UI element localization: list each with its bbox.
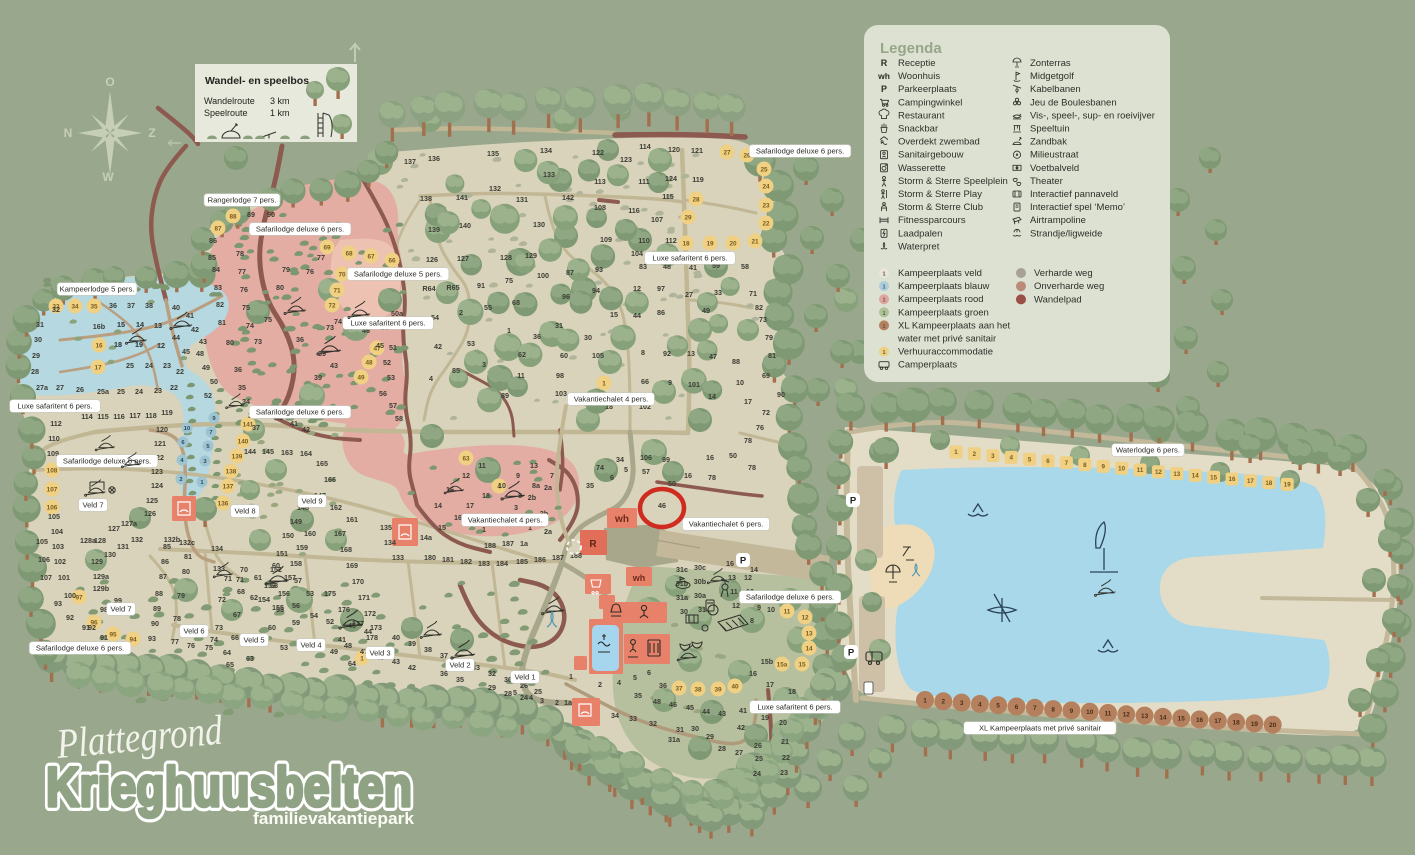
svg-text:Kampeerplaats blauw: Kampeerplaats blauw	[898, 281, 989, 292]
svg-text:135: 135	[380, 523, 392, 532]
svg-text:18: 18	[114, 340, 122, 349]
svg-text:7: 7	[209, 430, 212, 436]
svg-text:2: 2	[973, 451, 977, 458]
svg-text:10: 10	[1086, 709, 1094, 716]
svg-text:121: 121	[154, 439, 166, 448]
svg-text:15: 15	[117, 320, 125, 329]
svg-text:41: 41	[739, 706, 747, 715]
svg-text:14: 14	[1159, 714, 1167, 721]
svg-text:145: 145	[262, 447, 274, 456]
svg-text:5: 5	[633, 673, 637, 682]
svg-text:125: 125	[146, 496, 158, 505]
svg-text:163: 163	[281, 448, 293, 457]
svg-text:61: 61	[254, 573, 262, 582]
svg-text:80: 80	[182, 567, 190, 576]
svg-text:Veld 5: Veld 5	[243, 636, 264, 645]
svg-text:30a: 30a	[694, 591, 707, 600]
svg-text:79: 79	[282, 265, 290, 274]
svg-text:108: 108	[594, 203, 606, 212]
svg-text:127a: 127a	[121, 519, 138, 528]
svg-text:42: 42	[302, 425, 310, 434]
svg-text:R65: R65	[446, 283, 459, 292]
svg-text:79: 79	[177, 591, 185, 600]
svg-text:75: 75	[264, 315, 272, 324]
svg-text:29: 29	[684, 214, 692, 221]
svg-text:142: 142	[562, 193, 574, 202]
svg-text:12: 12	[744, 573, 752, 582]
svg-text:32: 32	[488, 669, 496, 678]
svg-text:57: 57	[642, 467, 650, 476]
svg-text:31: 31	[676, 725, 684, 734]
svg-text:37: 37	[127, 301, 135, 310]
svg-text:131: 131	[117, 542, 129, 551]
svg-text:1: 1	[882, 298, 885, 304]
svg-text:8: 8	[1051, 707, 1055, 714]
svg-text:Safarilodge deluxe 6 pers.: Safarilodge deluxe 6 pers.	[746, 593, 834, 602]
svg-text:27: 27	[56, 383, 64, 392]
svg-text:72: 72	[218, 595, 226, 604]
svg-text:116: 116	[628, 206, 640, 215]
svg-text:123: 123	[151, 467, 163, 476]
svg-text:126: 126	[144, 509, 156, 518]
svg-text:11: 11	[517, 371, 525, 380]
svg-text:75: 75	[242, 303, 250, 312]
svg-text:138: 138	[420, 194, 432, 203]
svg-text:38: 38	[694, 686, 702, 693]
svg-text:83: 83	[214, 283, 222, 292]
svg-text:119: 119	[161, 408, 173, 417]
svg-text:15: 15	[610, 310, 618, 319]
svg-text:15: 15	[1178, 716, 1186, 723]
svg-text:29: 29	[32, 351, 40, 360]
svg-text:31: 31	[36, 320, 44, 329]
svg-text:86: 86	[161, 557, 169, 566]
svg-text:181: 181	[442, 555, 454, 564]
svg-text:Safarilodge deluxe 6 pers.: Safarilodge deluxe 6 pers.	[256, 225, 344, 234]
svg-text:29: 29	[706, 732, 714, 741]
svg-text:10: 10	[1118, 465, 1125, 472]
svg-text:1: 1	[882, 285, 885, 291]
svg-text:Legenda: Legenda	[880, 40, 942, 57]
svg-text:37: 37	[440, 651, 448, 660]
svg-text:32: 32	[52, 305, 60, 314]
svg-text:98: 98	[556, 371, 564, 380]
svg-text:wh: wh	[632, 573, 646, 583]
svg-text:129: 129	[91, 557, 103, 566]
svg-text:87: 87	[159, 572, 167, 581]
svg-text:138: 138	[226, 468, 237, 475]
svg-text:19: 19	[761, 713, 769, 722]
svg-text:59: 59	[292, 618, 300, 627]
svg-text:85: 85	[452, 366, 460, 375]
svg-text:Verharde weg: Verharde weg	[1034, 268, 1093, 279]
svg-text:24: 24	[520, 693, 528, 702]
svg-text:Receptie: Receptie	[898, 58, 936, 69]
svg-text:78: 78	[744, 436, 752, 445]
svg-text:25a: 25a	[97, 387, 110, 396]
svg-text:56: 56	[379, 389, 387, 398]
svg-text:155: 155	[272, 603, 284, 612]
svg-text:50: 50	[729, 451, 737, 460]
svg-text:18: 18	[788, 687, 796, 696]
svg-text:42: 42	[434, 342, 442, 351]
svg-text:22: 22	[170, 383, 178, 392]
svg-text:12: 12	[1155, 469, 1162, 476]
svg-text:6: 6	[1046, 458, 1050, 465]
svg-text:35: 35	[238, 383, 246, 392]
svg-text:6: 6	[610, 473, 614, 482]
svg-text:20: 20	[1269, 722, 1277, 729]
svg-text:118: 118	[145, 411, 157, 420]
svg-text:30: 30	[34, 335, 42, 344]
svg-text:Kampeerplaats veld: Kampeerplaats veld	[898, 268, 982, 279]
svg-text:17: 17	[94, 364, 102, 371]
svg-text:90: 90	[777, 390, 785, 399]
svg-text:66: 66	[388, 257, 396, 264]
svg-text:33: 33	[629, 714, 637, 723]
svg-text:28: 28	[718, 744, 726, 753]
svg-text:36: 36	[533, 332, 541, 341]
svg-text:74: 74	[596, 463, 604, 472]
svg-text:85: 85	[163, 542, 171, 551]
svg-text:15a: 15a	[777, 661, 788, 668]
svg-text:1a: 1a	[564, 698, 573, 707]
svg-text:Storm & Sterre Play: Storm & Sterre Play	[898, 189, 982, 200]
svg-text:129a: 129a	[93, 572, 110, 581]
svg-text:1: 1	[602, 380, 606, 387]
svg-text:137: 137	[404, 157, 416, 166]
svg-text:80: 80	[276, 283, 284, 292]
svg-text:8: 8	[1083, 462, 1087, 469]
svg-text:2: 2	[459, 308, 463, 317]
svg-text:21: 21	[781, 737, 789, 746]
svg-text:49: 49	[202, 363, 210, 372]
svg-text:XL Kampeerplaats met privé san: XL Kampeerplaats met privé sanitair	[979, 724, 1102, 733]
svg-text:Speelroute: Speelroute	[204, 108, 248, 118]
svg-text:R: R	[589, 539, 597, 550]
svg-text:1a: 1a	[520, 539, 529, 548]
svg-text:Wasserette: Wasserette	[898, 163, 946, 174]
svg-text:105: 105	[592, 351, 604, 360]
svg-text:Wandelpad: Wandelpad	[1034, 294, 1082, 305]
svg-text:160: 160	[304, 529, 316, 538]
svg-text:R64: R64	[422, 284, 435, 293]
svg-text:Interactief spel ‘Memo’: Interactief spel ‘Memo’	[1030, 202, 1125, 213]
svg-text:Wandelroute: Wandelroute	[204, 96, 255, 106]
svg-text:80: 80	[226, 338, 234, 347]
svg-text:71: 71	[333, 287, 341, 294]
svg-text:42: 42	[737, 723, 745, 732]
svg-text:106: 106	[38, 555, 50, 564]
svg-text:11: 11	[478, 461, 486, 470]
svg-text:9: 9	[1070, 708, 1074, 715]
svg-text:27: 27	[723, 149, 731, 156]
svg-text:20: 20	[779, 718, 787, 727]
svg-text:95: 95	[109, 631, 117, 638]
svg-text:12: 12	[732, 601, 740, 610]
svg-text:48: 48	[196, 349, 204, 358]
svg-text:36: 36	[659, 681, 667, 690]
svg-text:7: 7	[1033, 705, 1037, 712]
svg-text:wh: wh	[614, 514, 629, 525]
svg-text:15: 15	[438, 523, 446, 532]
svg-text:Vakantiechalet 6 pers.: Vakantiechalet 6 pers.	[689, 520, 764, 529]
svg-text:Strandje/ligweide: Strandje/ligweide	[1030, 228, 1102, 239]
svg-text:16: 16	[1196, 717, 1204, 724]
svg-text:101: 101	[58, 573, 70, 582]
svg-text:25: 25	[534, 687, 542, 696]
svg-text:78: 78	[748, 463, 756, 472]
svg-text:24: 24	[145, 361, 153, 370]
svg-text:66: 66	[641, 377, 649, 386]
svg-text:165: 165	[316, 459, 328, 468]
svg-text:1: 1	[882, 324, 885, 330]
svg-text:Theater: Theater	[1030, 176, 1063, 187]
svg-text:familievakantiepark: familievakantiepark	[253, 809, 415, 828]
svg-text:170: 170	[352, 577, 364, 586]
svg-text:93: 93	[148, 634, 156, 643]
svg-text:16: 16	[684, 471, 692, 480]
svg-text:70: 70	[338, 271, 346, 278]
svg-text:105: 105	[36, 537, 48, 546]
svg-text:87: 87	[566, 268, 574, 277]
svg-text:10: 10	[498, 481, 506, 490]
svg-text:184: 184	[496, 559, 508, 568]
svg-text:65: 65	[226, 660, 234, 669]
svg-text:134: 134	[384, 538, 396, 547]
svg-text:34: 34	[71, 303, 79, 310]
svg-text:114: 114	[81, 412, 93, 421]
svg-text:117: 117	[129, 411, 141, 420]
svg-text:Kabelbanen: Kabelbanen	[1030, 84, 1081, 95]
svg-text:97: 97	[75, 594, 83, 601]
svg-text:18: 18	[482, 491, 490, 500]
svg-text:88: 88	[155, 589, 163, 598]
svg-text:56: 56	[292, 601, 300, 610]
svg-text:89: 89	[247, 210, 255, 219]
svg-text:16b: 16b	[93, 322, 106, 331]
svg-text:R: R	[881, 58, 888, 68]
svg-text:53: 53	[306, 589, 314, 598]
svg-text:53: 53	[280, 643, 288, 652]
svg-text:115: 115	[662, 192, 674, 201]
svg-text:58: 58	[741, 262, 749, 271]
svg-text:4: 4	[529, 693, 533, 702]
svg-text:5: 5	[1028, 456, 1032, 463]
svg-text:2: 2	[555, 698, 559, 707]
svg-text:Veld 7: Veld 7	[110, 605, 131, 614]
svg-text:31: 31	[555, 321, 563, 330]
svg-text:136: 136	[428, 154, 440, 163]
svg-text:46: 46	[669, 700, 677, 709]
svg-text:11: 11	[730, 587, 738, 596]
svg-text:30: 30	[691, 724, 699, 733]
svg-text:Parkeerplaats: Parkeerplaats	[898, 84, 957, 95]
svg-text:39: 39	[314, 373, 322, 382]
svg-text:158: 158	[290, 559, 302, 568]
svg-text:1: 1	[507, 326, 511, 335]
svg-text:81: 81	[218, 318, 226, 327]
svg-text:13: 13	[687, 349, 695, 358]
svg-text:106: 106	[640, 453, 652, 462]
svg-text:46: 46	[658, 501, 666, 510]
svg-text:Veld 2: Veld 2	[449, 661, 470, 670]
svg-text:100: 100	[537, 271, 549, 280]
svg-text:2b: 2b	[528, 493, 537, 502]
svg-text:85: 85	[208, 253, 216, 262]
svg-text:23: 23	[780, 768, 788, 777]
svg-text:25: 25	[760, 166, 768, 173]
svg-text:122: 122	[592, 148, 604, 157]
svg-text:91: 91	[100, 633, 108, 642]
svg-text:27: 27	[735, 748, 743, 757]
svg-text:22: 22	[176, 367, 184, 376]
svg-text:37: 37	[252, 423, 260, 432]
svg-text:110: 110	[48, 434, 60, 443]
svg-text:73: 73	[254, 337, 262, 346]
svg-text:188: 188	[484, 541, 496, 550]
svg-text:Veld 7: Veld 7	[82, 501, 103, 510]
svg-text:Milieustraat: Milieustraat	[1030, 150, 1079, 161]
svg-text:77: 77	[317, 253, 325, 262]
svg-text:74: 74	[246, 321, 254, 330]
svg-text:25: 25	[755, 754, 763, 763]
svg-text:141: 141	[456, 193, 468, 202]
svg-text:Veld 4: Veld 4	[300, 641, 321, 650]
svg-text:130: 130	[533, 220, 545, 229]
svg-text:110: 110	[638, 236, 650, 245]
svg-text:Overdekt zwembad: Overdekt zwembad	[898, 137, 980, 148]
svg-text:22: 22	[762, 220, 770, 227]
svg-text:66: 66	[231, 633, 239, 642]
svg-text:14: 14	[805, 645, 813, 652]
svg-text:151: 151	[276, 549, 288, 558]
svg-text:111: 111	[638, 177, 649, 186]
svg-text:16: 16	[726, 559, 734, 568]
svg-text:34: 34	[611, 711, 619, 720]
svg-text:134: 134	[211, 544, 223, 553]
svg-text:45: 45	[376, 341, 384, 350]
svg-text:7: 7	[1065, 460, 1069, 467]
svg-text:81: 81	[768, 351, 776, 360]
svg-text:33: 33	[714, 288, 722, 297]
svg-text:P: P	[850, 495, 857, 506]
svg-text:72: 72	[762, 408, 770, 417]
svg-text:16: 16	[95, 342, 103, 349]
svg-text:Veld 1: Veld 1	[514, 673, 535, 682]
svg-text:26: 26	[76, 385, 84, 394]
svg-text:Veld 8: Veld 8	[234, 507, 255, 516]
svg-text:28: 28	[504, 689, 512, 698]
svg-text:1: 1	[882, 272, 885, 278]
svg-text:Kampeerlodge 5 pers.: Kampeerlodge 5 pers.	[60, 285, 135, 294]
svg-text:15: 15	[1210, 474, 1217, 481]
svg-text:78: 78	[708, 473, 716, 482]
svg-text:Z: Z	[148, 126, 155, 140]
svg-text:17: 17	[1214, 718, 1222, 725]
svg-text:P: P	[848, 647, 855, 658]
svg-text:44: 44	[172, 333, 180, 342]
svg-text:31a: 31a	[676, 593, 689, 602]
svg-text:55: 55	[484, 303, 492, 312]
svg-text:5: 5	[513, 688, 517, 697]
svg-text:188: 188	[570, 551, 582, 560]
svg-text:109: 109	[600, 235, 612, 244]
svg-text:144: 144	[244, 447, 256, 456]
svg-text:22: 22	[782, 753, 790, 762]
svg-text:78: 78	[173, 614, 181, 623]
svg-text:36: 36	[234, 365, 242, 374]
svg-text:94: 94	[592, 286, 600, 295]
svg-text:58: 58	[395, 414, 403, 423]
svg-text:13: 13	[154, 321, 162, 330]
svg-text:2: 2	[179, 477, 182, 483]
svg-text:4: 4	[978, 701, 982, 708]
svg-text:137: 137	[223, 483, 234, 490]
svg-text:Speeltuin: Speeltuin	[1030, 124, 1070, 135]
svg-text:Luxe safaritent 6 pers.: Luxe safaritent 6 pers.	[17, 402, 92, 411]
svg-text:30c: 30c	[694, 563, 706, 572]
svg-text:P: P	[881, 84, 887, 94]
svg-text:107: 107	[40, 573, 52, 582]
svg-text:31c: 31c	[676, 565, 688, 574]
svg-text:96: 96	[562, 292, 570, 301]
svg-text:30b: 30b	[694, 577, 707, 586]
svg-text:16: 16	[454, 513, 462, 522]
svg-text:Safarilodge deluxe 6 pers.: Safarilodge deluxe 6 pers.	[256, 408, 344, 417]
svg-text:169: 169	[346, 561, 358, 570]
svg-text:O: O	[105, 75, 114, 89]
svg-text:73: 73	[215, 623, 223, 632]
svg-text:120: 120	[668, 145, 680, 154]
svg-text:24: 24	[762, 183, 770, 190]
svg-text:74: 74	[334, 317, 342, 326]
svg-text:Campingwinkel: Campingwinkel	[898, 97, 962, 108]
svg-text:4: 4	[1009, 455, 1013, 462]
svg-text:76: 76	[306, 267, 314, 276]
svg-text:Veld 3: Veld 3	[369, 649, 390, 658]
svg-text:Kampeerplaats rood: Kampeerplaats rood	[898, 294, 984, 305]
svg-text:40: 40	[392, 633, 400, 642]
svg-text:38: 38	[145, 301, 153, 310]
svg-text:Midgetgolf: Midgetgolf	[1030, 71, 1074, 82]
svg-text:68: 68	[512, 298, 520, 307]
svg-text:139: 139	[428, 225, 440, 234]
svg-text:91: 91	[477, 281, 485, 290]
svg-text:86: 86	[209, 236, 217, 245]
svg-text:14: 14	[434, 501, 442, 510]
svg-text:40: 40	[172, 303, 180, 312]
svg-text:Waterlodge 6 pers.: Waterlodge 6 pers.	[1116, 446, 1180, 455]
svg-text:27: 27	[685, 290, 693, 299]
svg-text:32: 32	[649, 719, 657, 728]
svg-text:10: 10	[736, 378, 744, 387]
svg-text:41: 41	[290, 419, 298, 428]
svg-text:43: 43	[330, 361, 338, 370]
svg-text:18: 18	[1265, 480, 1272, 487]
svg-text:36: 36	[296, 335, 304, 344]
svg-text:3: 3	[482, 360, 486, 369]
svg-text:29: 29	[488, 683, 496, 692]
svg-text:4: 4	[429, 374, 433, 383]
svg-text:149: 149	[290, 517, 302, 526]
svg-text:126: 126	[426, 255, 438, 264]
svg-text:13: 13	[530, 461, 538, 470]
svg-text:140: 140	[238, 438, 249, 445]
svg-text:40: 40	[731, 683, 739, 690]
svg-text:68: 68	[345, 250, 353, 257]
svg-text:57: 57	[389, 401, 397, 410]
